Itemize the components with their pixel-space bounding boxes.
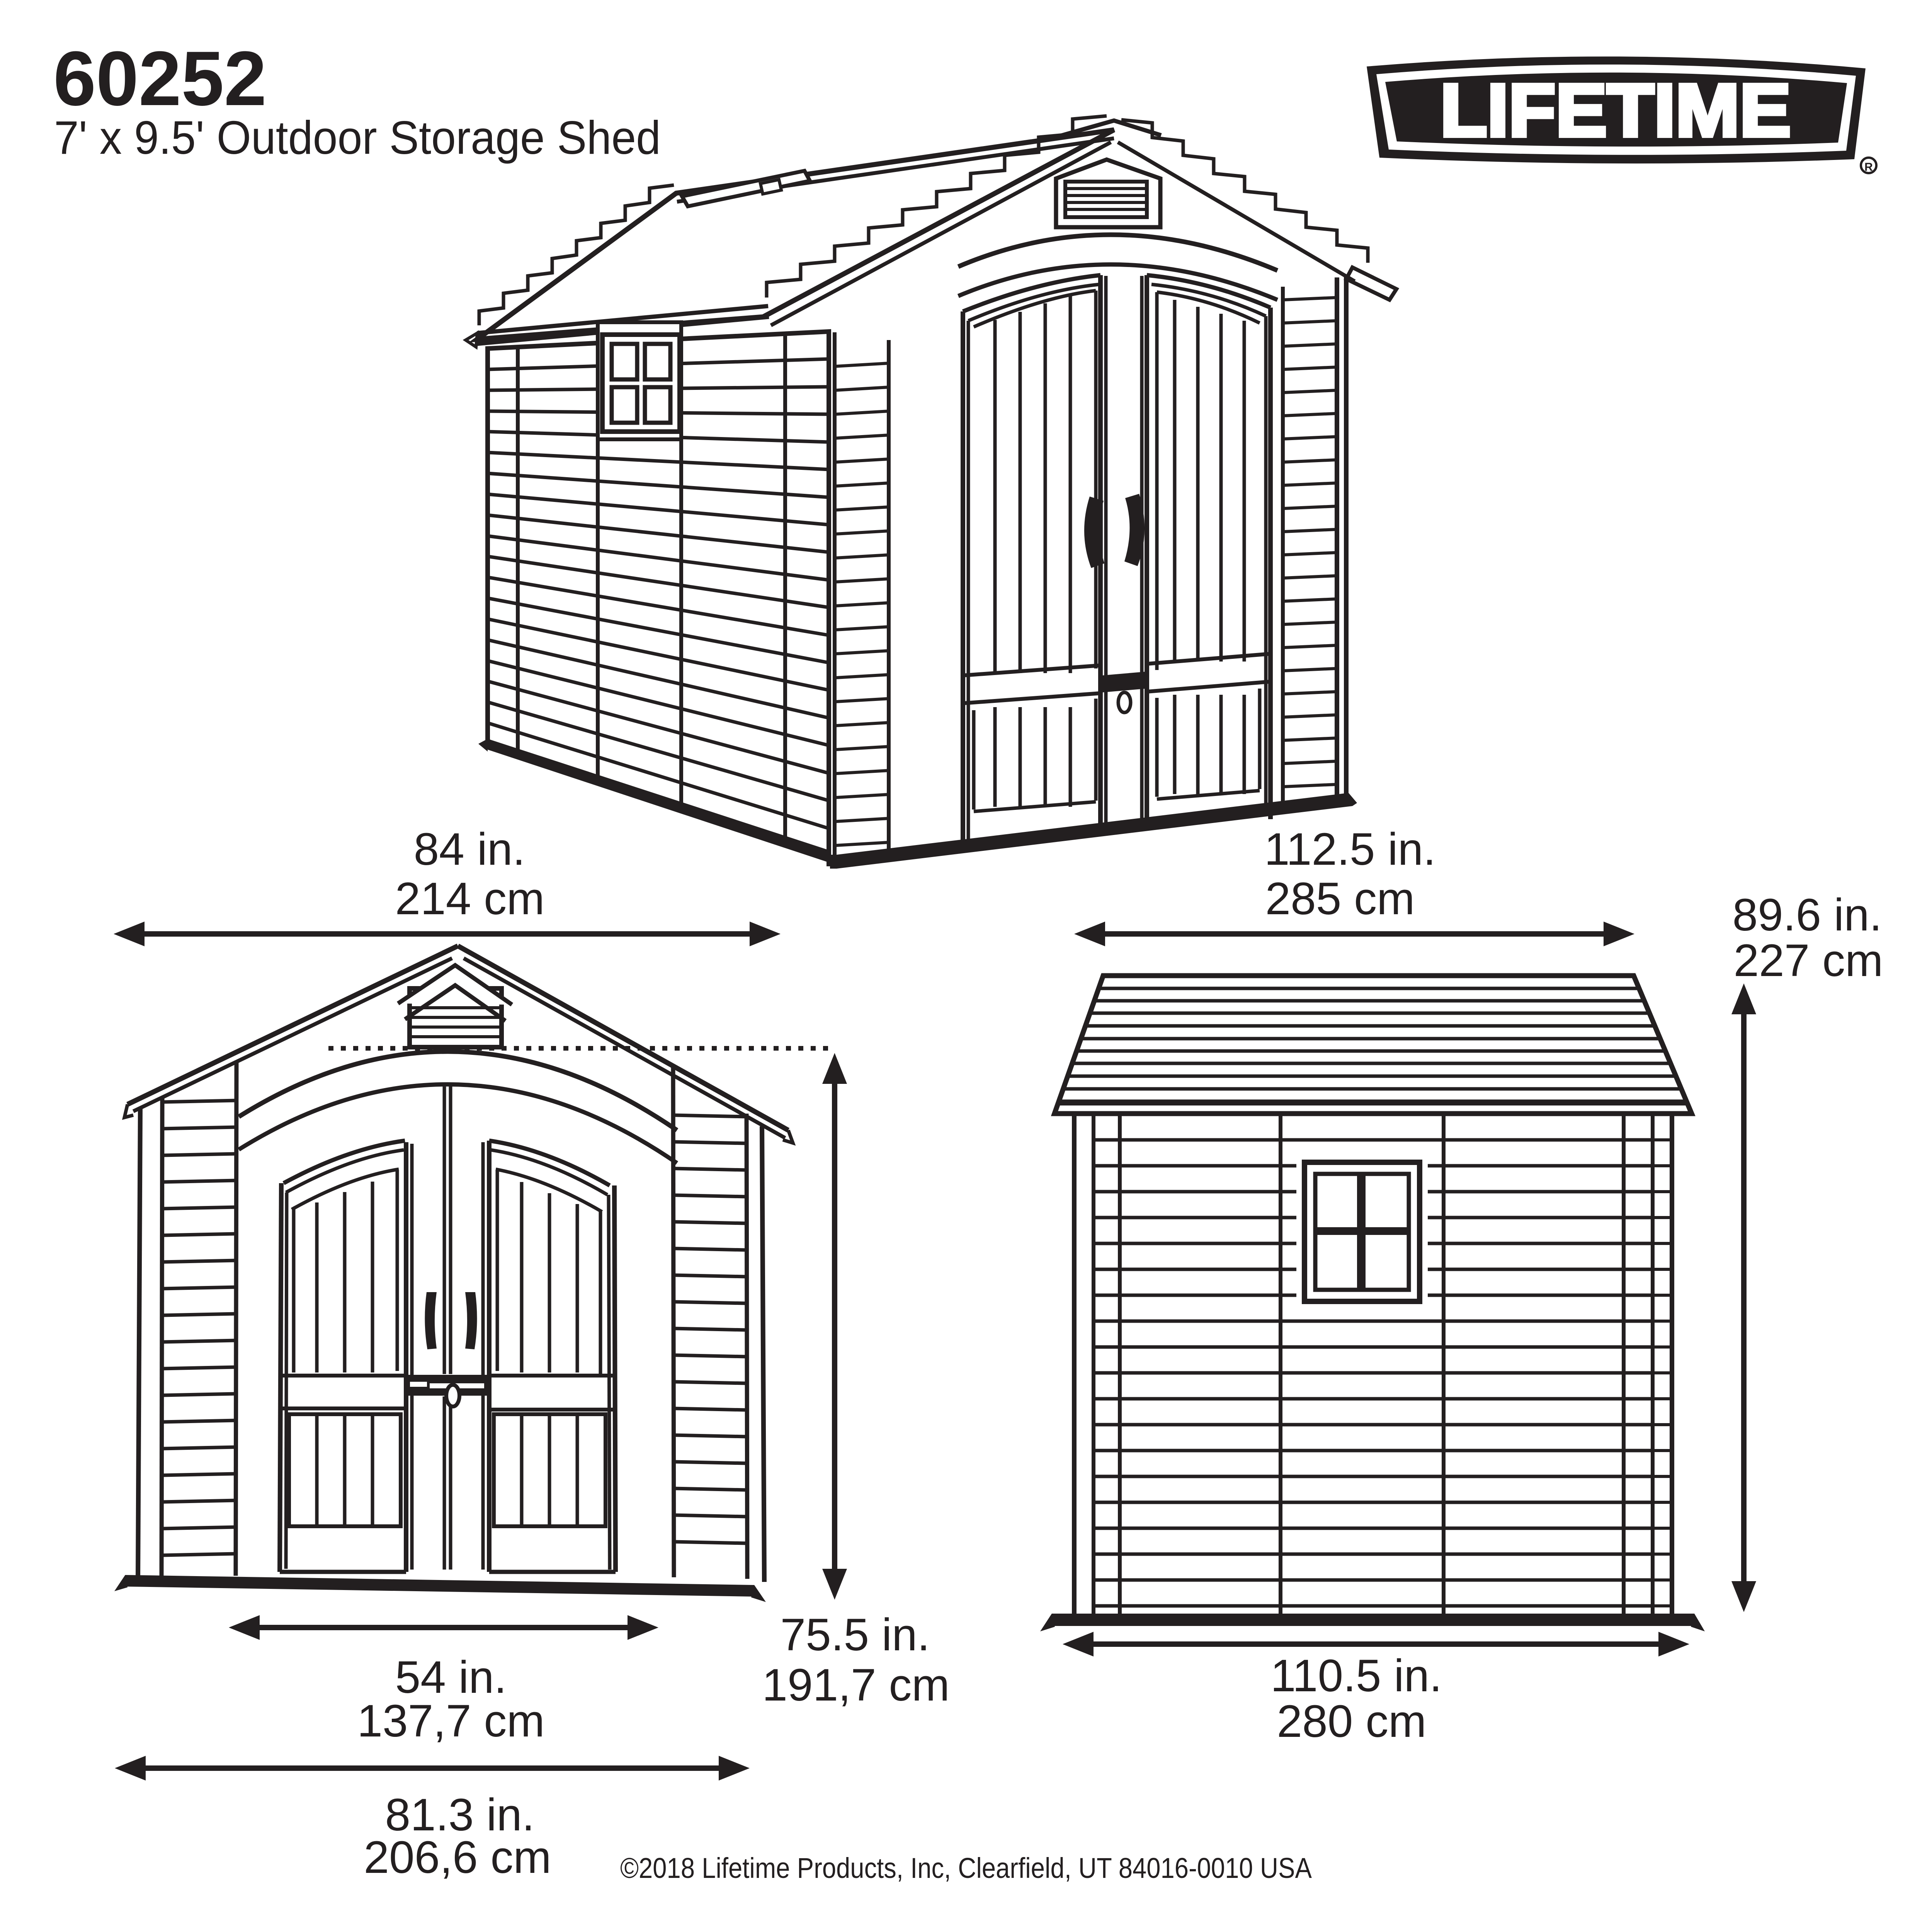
svg-text:LIFETIME: LIFETIME (1440, 68, 1791, 152)
svg-text:60252: 60252 (53, 36, 267, 122)
svg-text:110.5 in.: 110.5 in. (1270, 1650, 1442, 1701)
svg-text:7' x 9.5' Outdoor Storage Shed: 7' x 9.5' Outdoor Storage Shed (54, 111, 661, 164)
svg-text:285 cm: 285 cm (1265, 873, 1415, 924)
svg-text:206,6 cm: 206,6 cm (364, 1832, 551, 1883)
svg-text:©2018 Lifetime Products, Inc,: ©2018 Lifetime Products, Inc, Clearfield… (620, 1852, 1312, 1884)
svg-text:112.5 in.: 112.5 in. (1264, 824, 1436, 875)
svg-text:280 cm: 280 cm (1277, 1696, 1427, 1747)
svg-text:227 cm: 227 cm (1734, 935, 1883, 986)
svg-text:89.6 in.: 89.6 in. (1732, 889, 1882, 940)
svg-text:84 in.: 84 in. (414, 824, 526, 875)
svg-text:214 cm: 214 cm (395, 873, 545, 924)
svg-text:75.5 in.: 75.5 in. (780, 1609, 930, 1660)
svg-text:191,7 cm: 191,7 cm (762, 1660, 949, 1711)
svg-text:137,7 cm: 137,7 cm (357, 1696, 544, 1747)
svg-text:R: R (1864, 161, 1873, 173)
